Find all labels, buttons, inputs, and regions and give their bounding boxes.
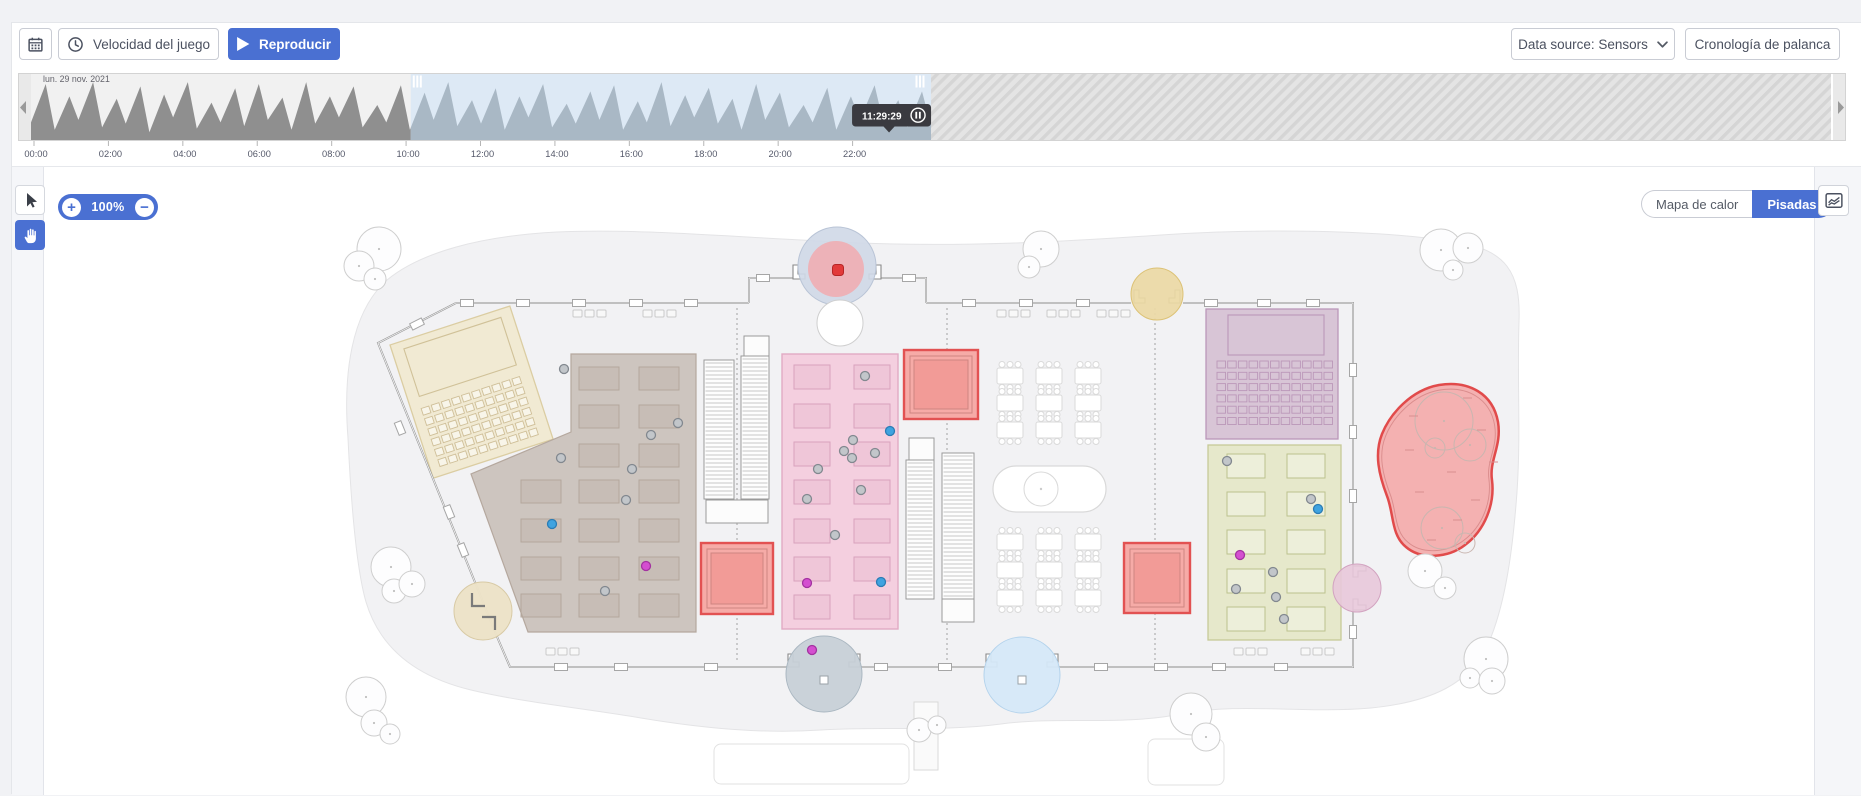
svg-text:12:00: 12:00	[471, 149, 494, 159]
person-dot-gray[interactable]	[849, 436, 858, 445]
zoom-out-button[interactable]: −	[135, 198, 154, 217]
elevator[interactable]	[701, 543, 773, 614]
svg-text:04:00: 04:00	[173, 149, 196, 159]
person-dot-gray[interactable]	[674, 419, 683, 428]
svg-text:02:00: 02:00	[99, 149, 122, 159]
calendar-icon	[27, 36, 44, 53]
svg-text:22:00: 22:00	[843, 149, 866, 159]
calendar-button[interactable]	[19, 28, 52, 60]
heatmap-label: Mapa de calor	[1656, 197, 1738, 212]
svg-text:10:00: 10:00	[396, 149, 419, 159]
timeline-axis	[18, 141, 1846, 161]
select-tool-button[interactable]	[15, 185, 45, 215]
person-dot-gray[interactable]	[1272, 593, 1281, 602]
zoom-control: + 100% −	[58, 194, 158, 220]
person-dot-gray[interactable]	[1269, 568, 1278, 577]
svg-text:16:00: 16:00	[620, 149, 643, 159]
selection-end-handle[interactable]	[916, 76, 925, 88]
timeline[interactable]: 00:0002:0004:0006:0008:0010:0012:0014:00…	[18, 69, 1846, 161]
cursor-icon	[22, 191, 39, 209]
elevator[interactable]	[904, 350, 978, 419]
entrance-southwest-rotunda[interactable]	[454, 582, 512, 640]
data-source-button[interactable]: Data source: Sensors	[1511, 28, 1675, 60]
person-dot-gray[interactable]	[557, 454, 566, 463]
lobby-circle	[817, 300, 863, 346]
entrance-south-west[interactable]	[786, 636, 862, 712]
hand-icon	[22, 226, 39, 244]
person-dot-gray[interactable]	[803, 495, 812, 504]
person-dot-gray[interactable]	[871, 449, 880, 458]
zoom-in-button[interactable]: +	[62, 198, 81, 217]
person-dot-magenta[interactable]	[1236, 551, 1245, 560]
person-dot-blue[interactable]	[886, 427, 895, 436]
person-dot-gray[interactable]	[848, 454, 857, 463]
svg-text:00:00: 00:00	[24, 149, 47, 159]
person-dot-gray[interactable]	[861, 372, 870, 381]
oval-table	[993, 466, 1106, 512]
left-tool-rail	[12, 167, 44, 795]
person-dot-magenta[interactable]	[803, 579, 812, 588]
heatmap-toggle-button[interactable]: Mapa de calor	[1641, 190, 1752, 218]
timeline-future-region	[931, 73, 1831, 141]
timeline-date-label: lun. 29 nov. 2021	[43, 74, 110, 84]
svg-text:18:00: 18:00	[694, 149, 717, 159]
clock-icon	[67, 36, 84, 53]
person-dot-gray[interactable]	[601, 587, 610, 596]
game-speed-button[interactable]: Velocidad del juego	[58, 28, 219, 60]
entrance-east[interactable]	[1333, 564, 1381, 612]
person-dot-gray[interactable]	[647, 431, 656, 440]
area-chart-icon	[1825, 192, 1843, 209]
entrance-north[interactable]	[798, 227, 876, 305]
svg-text:20:00: 20:00	[769, 149, 792, 159]
selection-start-handle[interactable]	[413, 76, 422, 88]
play-icon	[237, 37, 250, 51]
view-mode-toggle: Mapa de calor Pisadas	[1641, 190, 1833, 218]
person-dot-blue[interactable]	[548, 520, 557, 529]
svg-text:14:00: 14:00	[545, 149, 568, 159]
entrance-south-east[interactable]	[984, 637, 1060, 713]
person-dot-gray[interactable]	[628, 465, 637, 474]
person-dot-gray[interactable]	[831, 531, 840, 540]
zone-pond[interactable]	[1378, 384, 1499, 556]
playhead-time: 11:29:29	[862, 112, 902, 123]
lever-timeline-label: Cronología de palanca	[1695, 37, 1831, 52]
game-speed-label: Velocidad del juego	[93, 37, 210, 52]
lever-timeline-button[interactable]: Cronología de palanca	[1685, 28, 1840, 60]
person-dot-magenta[interactable]	[808, 646, 817, 655]
person-dot-gray[interactable]	[622, 496, 631, 505]
person-dot-gray[interactable]	[1280, 615, 1289, 624]
person-dot-gray[interactable]	[1307, 495, 1316, 504]
pan-tool-button[interactable]	[15, 220, 45, 250]
person-dot-gray[interactable]	[1223, 457, 1232, 466]
main-panel: Velocidad del juego Reproducir Data sour…	[11, 22, 1861, 794]
play-label: Reproducir	[259, 37, 331, 52]
person-dot-gray[interactable]	[840, 447, 849, 456]
person-dot-gray[interactable]	[814, 465, 823, 474]
person-dot-blue[interactable]	[877, 578, 886, 587]
person-dot-magenta[interactable]	[642, 562, 651, 571]
alert-dot	[833, 265, 844, 276]
person-dot-gray[interactable]	[857, 486, 866, 495]
play-button[interactable]: Reproducir	[228, 28, 340, 60]
floor-plan-canvas[interactable]: + 100% − Mapa de calor Pisadas	[12, 166, 1861, 795]
svg-text:08:00: 08:00	[322, 149, 345, 159]
zoom-level: 100%	[91, 200, 124, 214]
analytics-panel-button[interactable]	[1818, 185, 1849, 216]
entrance-northeast[interactable]	[1131, 268, 1183, 320]
plus-icon: +	[67, 200, 76, 215]
minus-icon: −	[140, 200, 149, 215]
chevron-down-icon	[1657, 41, 1668, 48]
person-dot-gray[interactable]	[1232, 585, 1241, 594]
right-tool-rail	[1814, 167, 1861, 795]
svg-text:06:00: 06:00	[248, 149, 271, 159]
person-dot-gray[interactable]	[560, 365, 569, 374]
elevator[interactable]	[1124, 543, 1190, 613]
person-dot-blue[interactable]	[1314, 505, 1323, 514]
data-source-label: Data source: Sensors	[1518, 37, 1648, 52]
footsteps-label: Pisadas	[1767, 197, 1816, 212]
